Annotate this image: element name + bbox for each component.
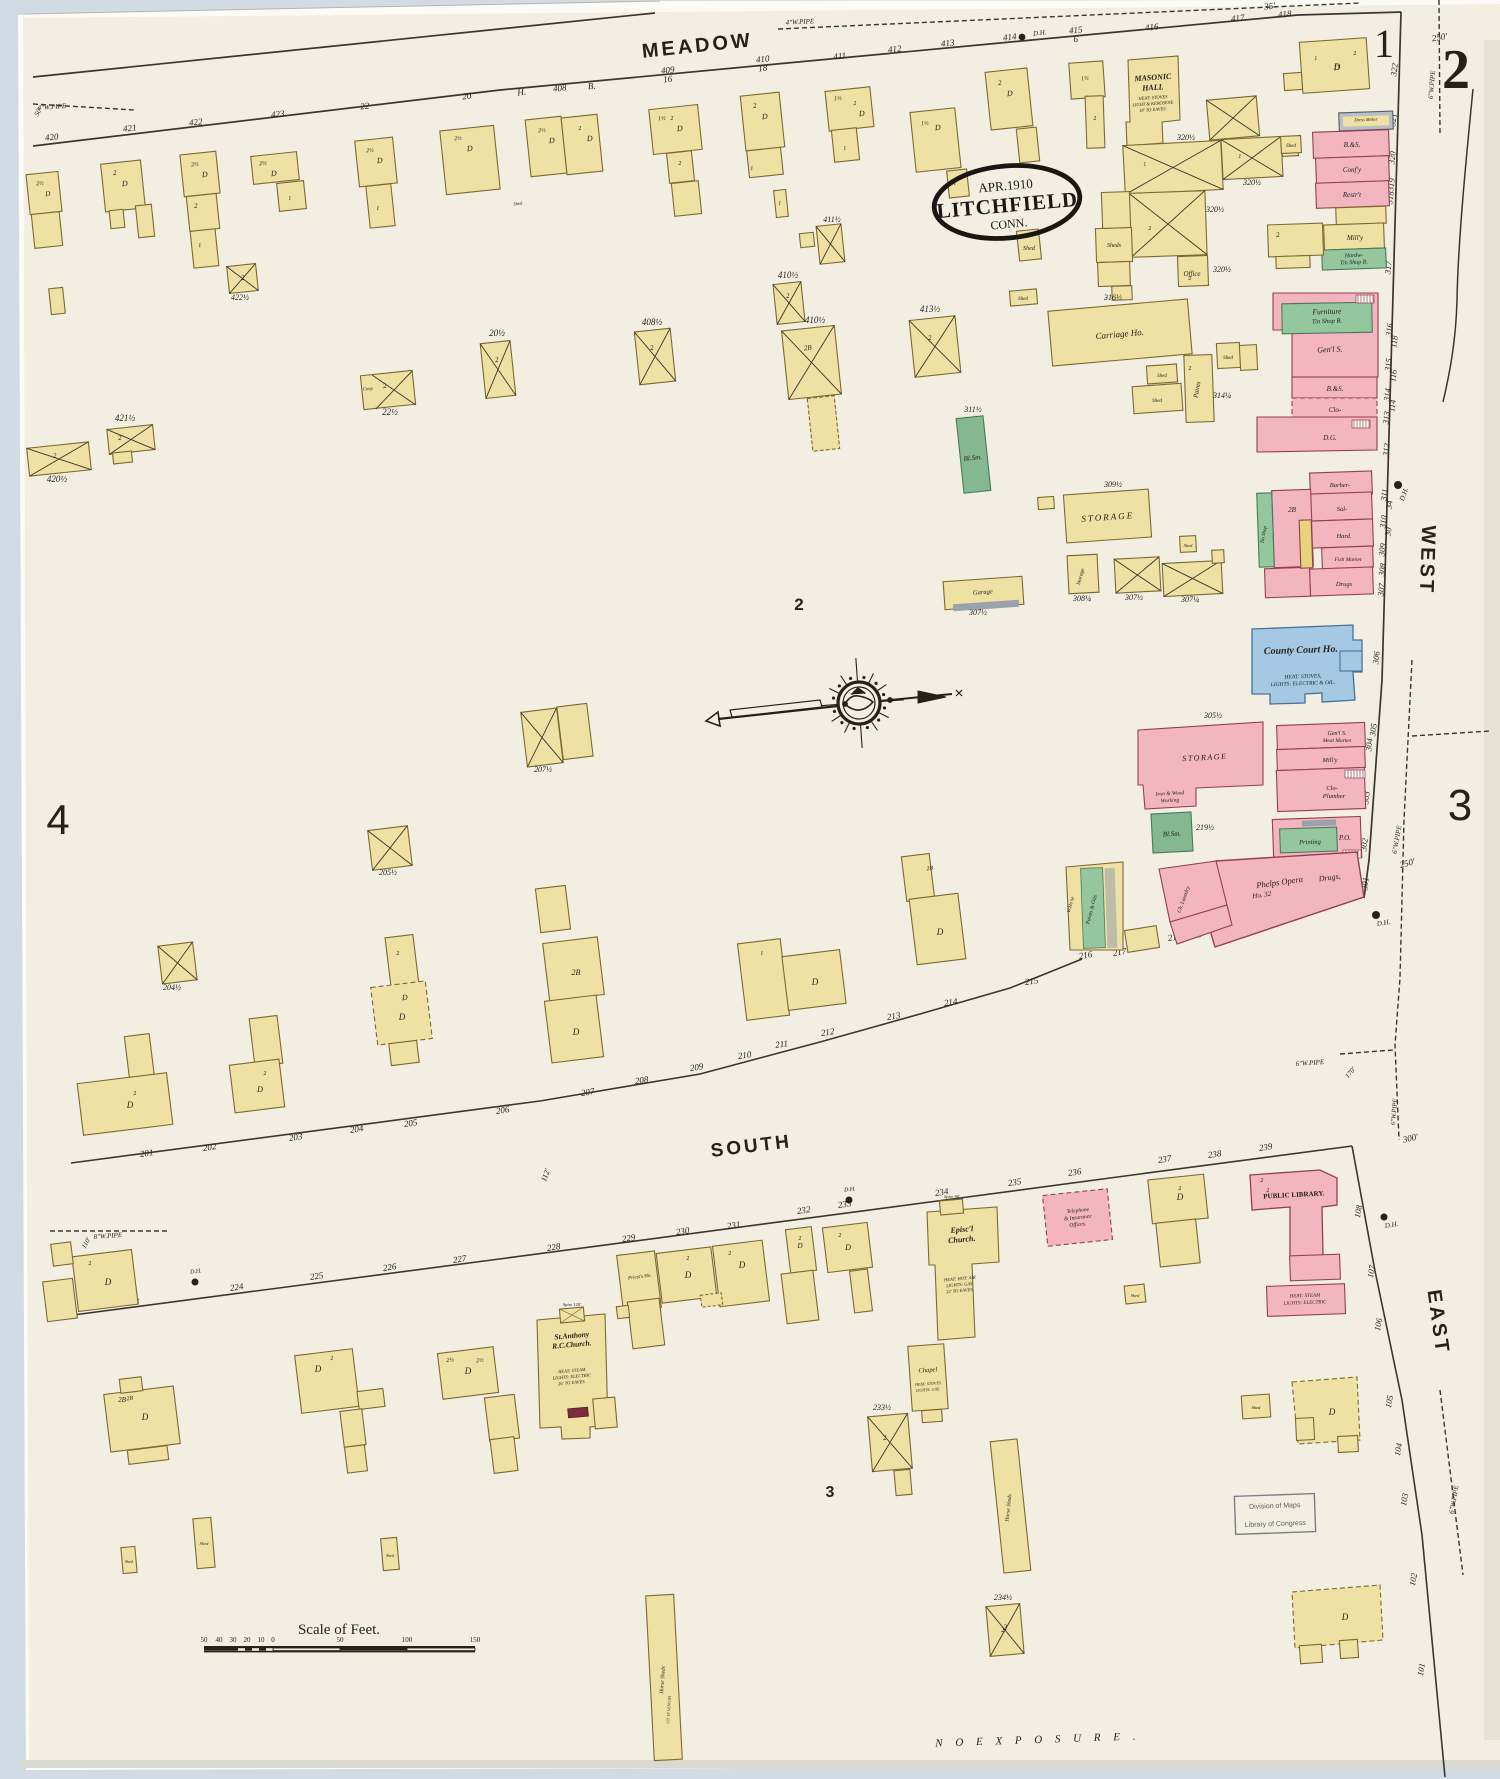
svg-text:2: 2: [1178, 1186, 1182, 1192]
svg-text:208: 208: [634, 1074, 649, 1086]
svg-text:B.&S.: B.&S.: [1344, 141, 1361, 149]
svg-text:203: 203: [288, 1131, 303, 1143]
svg-text:1½: 1½: [834, 95, 843, 103]
svg-text:Sal-: Sal-: [1337, 506, 1347, 513]
svg-text:D: D: [857, 109, 865, 119]
svg-text:412: 412: [887, 43, 902, 54]
svg-text:2: 2: [1148, 226, 1152, 232]
svg-text:Garage: Garage: [973, 588, 993, 596]
svg-text:1: 1: [1314, 56, 1318, 62]
svg-text:212: 212: [820, 1026, 835, 1038]
svg-text:413½: 413½: [920, 304, 941, 314]
svg-text:2½: 2½: [259, 160, 268, 168]
svg-text:420: 420: [44, 131, 59, 142]
svg-text:Furniture: Furniture: [1311, 306, 1342, 316]
svg-text:2: 2: [1188, 276, 1192, 282]
svg-text:D.G.: D.G.: [1322, 434, 1337, 442]
svg-text:2B: 2B: [572, 968, 581, 977]
svg-text:2B: 2B: [126, 1396, 134, 1403]
svg-text:2B: 2B: [1288, 506, 1297, 514]
svg-text:40: 40: [216, 1636, 224, 1644]
svg-text:D: D: [547, 136, 555, 146]
svg-text:Mill'y: Mill'y: [1346, 234, 1364, 242]
svg-text:413: 413: [940, 37, 955, 48]
svg-text:2: 2: [330, 1356, 334, 1362]
svg-text:225: 225: [309, 1270, 324, 1282]
svg-text:2: 2: [1353, 51, 1357, 57]
svg-text:Shed: Shed: [1286, 144, 1296, 149]
svg-text:313: 313: [1380, 411, 1392, 426]
svg-text:206: 206: [495, 1104, 510, 1116]
svg-text:Clo-: Clo-: [1329, 406, 1342, 414]
svg-text:4: 4: [46, 796, 69, 843]
svg-text:20½: 20½: [489, 328, 505, 338]
svg-text:226: 226: [382, 1261, 397, 1273]
svg-text:235: 235: [1007, 1176, 1022, 1188]
svg-text:Office: Office: [1183, 270, 1200, 278]
svg-text:D: D: [1005, 89, 1013, 99]
svg-text:Clo-: Clo-: [1326, 785, 1338, 792]
svg-text:D: D: [269, 169, 277, 179]
svg-text:1½: 1½: [921, 120, 930, 128]
svg-text:Shed: Shed: [513, 200, 523, 206]
svg-text:B.&S.: B.&S.: [1327, 385, 1344, 393]
svg-text:22: 22: [360, 101, 370, 112]
svg-text:224: 224: [229, 1281, 244, 1293]
svg-text:Bl.Sm.: Bl.Sm.: [1163, 830, 1182, 839]
svg-text:421½: 421½: [115, 413, 136, 423]
svg-text:50: 50: [337, 1636, 345, 1644]
svg-text:422½: 422½: [231, 293, 249, 302]
svg-text:Shed: Shed: [1018, 297, 1028, 302]
svg-text:2: 2: [263, 1071, 267, 1077]
svg-text:312: 312: [1380, 442, 1392, 458]
svg-text:1: 1: [778, 201, 782, 207]
svg-text:231: 231: [726, 1219, 741, 1231]
svg-text:414: 414: [1002, 31, 1017, 42]
svg-text:114: 114: [1386, 398, 1397, 412]
svg-text:316½: 316½: [1103, 293, 1122, 302]
svg-text:2: 2: [728, 1251, 732, 1257]
svg-text:Mill'y: Mill'y: [1321, 757, 1337, 764]
svg-text:D: D: [811, 977, 819, 987]
svg-text:306: 306: [1370, 650, 1382, 666]
svg-text:2: 2: [853, 101, 857, 107]
svg-text:2: 2: [396, 951, 400, 957]
svg-text:Tin Shop B.: Tin Shop B.: [1340, 260, 1368, 267]
svg-text:Fish Market: Fish Market: [1333, 557, 1362, 563]
svg-text:2: 2: [686, 1256, 690, 1262]
svg-text:2: 2: [1188, 366, 1192, 372]
svg-text:2: 2: [798, 1236, 802, 1242]
svg-text:2½: 2½: [454, 135, 463, 143]
svg-text:D: D: [120, 179, 128, 189]
svg-text:D: D: [738, 1260, 746, 1270]
svg-text:D: D: [844, 1243, 851, 1252]
svg-text:D: D: [375, 156, 383, 166]
svg-text:214: 214: [943, 996, 958, 1008]
svg-text:2½: 2½: [366, 147, 375, 155]
svg-text:1: 1: [760, 951, 764, 957]
svg-text:HALL: HALL: [1141, 82, 1164, 93]
svg-text:1: 1: [953, 181, 957, 187]
svg-text:Dress Maker: Dress Maker: [1353, 117, 1378, 123]
svg-text:D: D: [572, 1027, 580, 1037]
svg-text:320½: 320½: [1176, 133, 1195, 142]
svg-text:408: 408: [552, 82, 567, 93]
svg-text:Drugs: Drugs: [1335, 581, 1353, 588]
svg-text:307: 307: [1375, 582, 1387, 598]
svg-text:Spire 90': Spire 90': [944, 1194, 961, 1199]
svg-text:308¼: 308¼: [1072, 594, 1091, 603]
svg-text:308: 308: [1376, 562, 1388, 578]
svg-text:Barber-: Barber-: [1330, 482, 1350, 489]
svg-text:418: 418: [1277, 8, 1292, 19]
svg-text:18: 18: [758, 63, 768, 74]
svg-text:314¼: 314¼: [1212, 391, 1231, 400]
svg-text:417: 417: [1230, 12, 1245, 23]
svg-text:D: D: [1176, 1192, 1184, 1202]
svg-text:213: 213: [886, 1010, 901, 1022]
svg-text:232: 232: [796, 1204, 811, 1216]
svg-text:50: 50: [201, 1636, 209, 1644]
svg-text:Sheds: Sheds: [1107, 243, 1122, 249]
svg-text:20: 20: [244, 1636, 252, 1644]
svg-text:Shed: Shed: [125, 1559, 134, 1564]
svg-text:236: 236: [1067, 1166, 1082, 1178]
svg-text:410½: 410½: [778, 270, 799, 280]
svg-text:2: 2: [133, 1091, 137, 1097]
svg-text:2½: 2½: [191, 161, 200, 169]
svg-text:1½: 1½: [658, 115, 667, 123]
svg-text:408½: 408½: [642, 317, 663, 327]
svg-text:P.O.: P.O.: [1338, 834, 1351, 842]
svg-text:D: D: [464, 1366, 472, 1376]
svg-text:239: 239: [1258, 1141, 1273, 1153]
svg-text:410½: 410½: [805, 315, 826, 325]
svg-text:30: 30: [230, 1636, 238, 1644]
svg-text:Hardw-: Hardw-: [1344, 253, 1364, 260]
svg-text:2: 2: [794, 595, 803, 614]
svg-text:Shed: Shed: [200, 1541, 209, 1546]
svg-text:2½: 2½: [36, 180, 45, 188]
svg-text:1½: 1½: [1081, 75, 1090, 83]
svg-text:Restr't: Restr't: [1342, 191, 1362, 199]
svg-text:Printing: Printing: [1298, 839, 1322, 847]
svg-text:Plumber: Plumber: [1322, 793, 1346, 800]
svg-text:305½: 305½: [1203, 711, 1222, 720]
svg-text:D: D: [933, 123, 941, 133]
svg-text:229: 229: [621, 1232, 636, 1244]
svg-text:0: 0: [271, 1636, 275, 1644]
svg-text:309: 309: [1376, 542, 1388, 558]
svg-text:205: 205: [403, 1117, 418, 1129]
svg-text:1: 1: [1238, 154, 1242, 160]
svg-text:Gen'l S.: Gen'l S.: [1328, 731, 1347, 737]
svg-text:Spire 120': Spire 120': [563, 1302, 582, 1307]
svg-text:422: 422: [188, 116, 203, 127]
svg-text:2: 2: [838, 1233, 842, 1239]
svg-text:D: D: [256, 1085, 263, 1094]
svg-text:421: 421: [122, 122, 136, 133]
svg-text:D.H.: D.H.: [1032, 28, 1048, 38]
svg-text:204: 204: [349, 1123, 364, 1135]
svg-text:207½: 207½: [534, 765, 552, 774]
svg-text:201: 201: [139, 1147, 154, 1159]
svg-text:305: 305: [1367, 723, 1379, 738]
svg-text:100: 100: [402, 1636, 413, 1644]
svg-text:1: 1: [198, 243, 202, 249]
svg-text:Chapel: Chapel: [918, 1366, 937, 1374]
svg-text:D: D: [400, 993, 408, 1003]
svg-text:D: D: [141, 1412, 149, 1422]
svg-text:D: D: [684, 1270, 692, 1280]
svg-text:Shed: Shed: [1023, 246, 1036, 252]
svg-text:116: 116: [1387, 368, 1398, 382]
svg-text:D: D: [1341, 1612, 1349, 1622]
svg-text:2: 2: [670, 116, 674, 122]
svg-text:D: D: [104, 1277, 112, 1287]
svg-text:D: D: [585, 134, 593, 144]
svg-text:118: 118: [1388, 334, 1399, 348]
svg-text:Meat Market: Meat Market: [1322, 738, 1352, 744]
svg-text:1: 1: [376, 206, 380, 212]
svg-text:Shed: Shed: [1184, 543, 1193, 548]
svg-text:1: 1: [750, 166, 754, 172]
svg-text:2: 2: [1442, 39, 1470, 101]
svg-text:3: 3: [826, 1484, 835, 1501]
svg-text:Shed: Shed: [1252, 1405, 1261, 1410]
svg-text:D: D: [200, 170, 208, 180]
svg-text:Conf'y: Conf'y: [1343, 166, 1362, 174]
svg-text:Working: Working: [1161, 798, 1180, 805]
svg-text:207: 207: [580, 1086, 595, 1098]
svg-text:150: 150: [470, 1636, 481, 1644]
svg-text:234½: 234½: [994, 1593, 1012, 1602]
svg-text:D: D: [936, 927, 944, 937]
svg-text:1: 1: [843, 146, 847, 152]
svg-text:2: 2: [88, 1261, 92, 1267]
svg-text:416: 416: [1144, 21, 1159, 32]
svg-text:307¼: 307¼: [1180, 595, 1199, 604]
svg-text:D: D: [398, 1012, 406, 1022]
svg-text:3: 3: [1448, 781, 1472, 830]
svg-text:205½: 205½: [379, 868, 397, 877]
svg-text:2½: 2½: [538, 127, 547, 135]
svg-text:D: D: [796, 1242, 802, 1250]
svg-text:10: 10: [258, 1636, 266, 1644]
svg-text:307½: 307½: [968, 608, 987, 617]
svg-text:411: 411: [833, 50, 847, 61]
svg-text:35': 35': [1263, 0, 1277, 11]
svg-text:Shed: Shed: [1223, 356, 1233, 361]
svg-text:Hard.: Hard.: [1335, 533, 1351, 540]
svg-text:228: 228: [546, 1241, 561, 1253]
svg-text:309½: 309½: [1103, 480, 1122, 489]
svg-text:2B: 2B: [118, 1396, 127, 1404]
svg-text:204½: 204½: [163, 983, 181, 992]
svg-text:237: 237: [1157, 1153, 1172, 1165]
svg-text:307½: 307½: [1124, 593, 1143, 602]
svg-text:2½: 2½: [446, 1357, 454, 1364]
svg-text:320½: 320½: [1242, 178, 1261, 187]
svg-text:4"W.PIPE: 4"W.PIPE: [785, 17, 815, 27]
svg-text:1: 1: [1374, 21, 1394, 66]
svg-text:420½: 420½: [47, 474, 68, 484]
svg-text:1: 1: [288, 196, 292, 202]
svg-text:2B: 2B: [926, 866, 934, 873]
svg-text:2: 2: [1266, 1188, 1270, 1194]
svg-text:D: D: [675, 124, 683, 134]
svg-text:16: 16: [663, 74, 673, 85]
svg-text:2: 2: [678, 161, 682, 167]
svg-text:411½: 411½: [823, 215, 840, 224]
svg-text:2: 2: [578, 126, 582, 132]
svg-text:1: 1: [1143, 162, 1147, 168]
svg-text:Tin Shop B.: Tin Shop B.: [1312, 317, 1343, 325]
svg-text:20: 20: [462, 91, 472, 102]
svg-text:211: 211: [775, 1038, 789, 1050]
svg-text:22½: 22½: [382, 407, 398, 417]
svg-text:311½: 311½: [963, 405, 981, 414]
svg-text:D: D: [314, 1364, 322, 1374]
svg-text:WEST: WEST: [1415, 525, 1439, 596]
svg-text:D: D: [44, 190, 51, 199]
svg-text:Gen'l S.: Gen'l S.: [1317, 345, 1343, 355]
svg-text:233½: 233½: [873, 1403, 891, 1412]
svg-text:D: D: [126, 1100, 134, 1110]
svg-text:322: 322: [1388, 62, 1400, 78]
svg-text:215: 215: [1024, 975, 1039, 987]
svg-text:320½: 320½: [1212, 265, 1231, 274]
svg-text:Shed: Shed: [1152, 399, 1162, 404]
svg-text:2: 2: [1093, 116, 1097, 122]
svg-text:D: D: [465, 144, 473, 154]
svg-text:227: 227: [452, 1253, 467, 1265]
svg-text:230: 230: [675, 1225, 690, 1237]
svg-text:H.: H.: [516, 87, 527, 98]
svg-text:209: 209: [689, 1061, 704, 1073]
svg-text:Shed: Shed: [1131, 1293, 1140, 1298]
svg-text:B.: B.: [587, 81, 596, 92]
svg-text:D: D: [760, 112, 768, 122]
svg-text:Shed: Shed: [1157, 374, 1167, 379]
svg-text:D: D: [1332, 63, 1340, 73]
svg-text:320½: 320½: [1205, 205, 1224, 214]
svg-text:423: 423: [270, 108, 285, 119]
svg-text:D: D: [1328, 1407, 1336, 1417]
svg-text:Shed: Shed: [386, 1553, 395, 1558]
svg-text:238: 238: [1207, 1148, 1222, 1160]
svg-text:202: 202: [202, 1141, 217, 1153]
svg-text:210: 210: [737, 1049, 752, 1061]
svg-text:2: 2: [1260, 1178, 1264, 1184]
svg-text:219½: 219½: [1196, 823, 1214, 832]
svg-text:2½: 2½: [476, 1357, 485, 1365]
